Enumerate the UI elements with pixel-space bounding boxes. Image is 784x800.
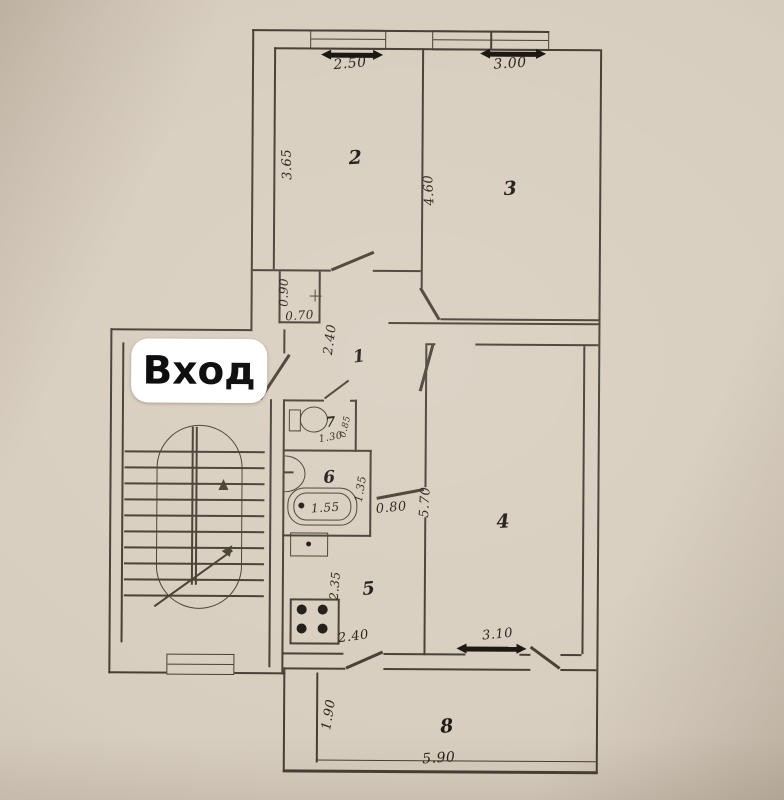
kitchen-sink-drain xyxy=(306,541,311,546)
wall-segment xyxy=(316,760,596,763)
wall-segment xyxy=(475,344,598,347)
room-number-hallway-number: 1 xyxy=(352,346,367,367)
wall-segment xyxy=(383,653,425,655)
dimension-label-bathroom-bathtub_length: 1.55 xyxy=(311,500,341,516)
wall-segment xyxy=(423,517,426,655)
door-leaf xyxy=(530,646,560,669)
wall-segment xyxy=(425,653,465,655)
dimension-label-wc-depth: 0.85 xyxy=(338,415,353,439)
door-leaf xyxy=(420,287,441,320)
staircase-loop xyxy=(156,425,243,610)
door-leaf xyxy=(345,651,383,669)
room-number-room3-number: 3 xyxy=(503,177,518,200)
washbasin-tap xyxy=(285,471,294,473)
dimension-label-closet-depth: 0.90 xyxy=(277,278,291,307)
bathtub-drain xyxy=(298,502,304,508)
wall-segment xyxy=(283,769,598,774)
closet-door-tick xyxy=(315,290,316,302)
wall-segment xyxy=(560,654,581,656)
wall-segment xyxy=(283,329,285,353)
room-number-kitchen-number: 5 xyxy=(361,578,376,600)
room-number-bathroom-number: 6 xyxy=(323,467,337,488)
wall-segment xyxy=(316,673,319,763)
dimension-label-room3-window_width: 3.00 xyxy=(493,55,527,73)
wall-segment xyxy=(281,652,343,654)
wall-segment xyxy=(110,328,252,331)
dimension-label-balcony-depth: 1.90 xyxy=(319,698,339,731)
door-leaf xyxy=(324,380,349,399)
wall-segment xyxy=(283,449,372,452)
wall-segment xyxy=(581,346,585,654)
wall-segment xyxy=(252,29,549,33)
room-number-room4-number: 4 xyxy=(496,510,511,533)
wall-segment xyxy=(268,399,272,667)
dimension-label-room4-depth: 5.70 xyxy=(417,486,434,518)
window-symbol-room4 xyxy=(465,646,517,651)
dimension-label-bathroom-depth: 1.35 xyxy=(352,475,369,503)
wall-segment xyxy=(318,272,320,324)
entrance-text: Вход xyxy=(142,351,255,391)
wall-segment xyxy=(421,48,424,288)
stair-window-midline xyxy=(167,663,233,664)
room-number-room2-number: 2 xyxy=(348,146,363,169)
wall-segment xyxy=(355,400,357,452)
wall-segment xyxy=(519,654,530,656)
wall-segment xyxy=(281,399,285,674)
stair-window-symbol xyxy=(166,654,234,675)
door-leaf xyxy=(376,488,424,499)
floor-plan-photo: Вход 2.503.003.654.60230.900.702.40171.3… xyxy=(0,0,784,800)
wall-segment xyxy=(596,49,602,773)
vent-divider xyxy=(490,31,492,49)
wall-segment xyxy=(250,29,254,331)
wall-segment xyxy=(273,47,276,269)
stove-burner xyxy=(318,624,328,634)
stove-burner xyxy=(318,605,328,615)
wall-segment xyxy=(373,270,421,272)
room-number-balcony-number: 8 xyxy=(439,715,455,738)
wall-segment xyxy=(388,322,598,325)
floor-plan: Вход 2.503.003.654.60230.900.702.40171.3… xyxy=(0,0,784,800)
wall-segment xyxy=(283,667,286,771)
wall-segment xyxy=(283,399,324,401)
dimension-label-room4-door_width: 0.80 xyxy=(375,499,407,517)
door-leaf xyxy=(331,251,374,271)
dimension-label-kitchen-depth: 2.35 xyxy=(327,571,343,601)
wall-segment xyxy=(369,450,372,537)
stove-burner xyxy=(297,604,307,614)
dimension-label-hallway-depth: 2.40 xyxy=(321,323,340,356)
wall-segment xyxy=(560,669,596,671)
wall-segment xyxy=(383,668,530,671)
room-number-wc-number: 7 xyxy=(325,414,337,431)
dimension-label-room2-depth: 3.65 xyxy=(279,149,295,180)
dimension-label-room4-window_width: 3.10 xyxy=(481,626,513,644)
vent-divider xyxy=(311,39,385,40)
wall-segment xyxy=(440,318,598,321)
dimension-label-room3-depth: 4.60 xyxy=(421,174,437,206)
dimension-label-kitchen-width: 2.40 xyxy=(337,627,370,646)
wall-segment xyxy=(108,328,112,673)
wall-segment xyxy=(283,667,345,669)
wall-segment xyxy=(121,342,125,642)
dimension-label-room2-window_width: 2.50 xyxy=(333,54,367,73)
toilet-icon xyxy=(300,406,328,432)
dimension-label-balcony-width: 5.90 xyxy=(422,749,456,767)
entrance-label: Вход xyxy=(131,338,267,403)
stair-arrow-head-icon xyxy=(218,479,228,490)
stove-burner xyxy=(297,623,307,633)
dimension-label-closet-width: 0.70 xyxy=(285,308,315,324)
